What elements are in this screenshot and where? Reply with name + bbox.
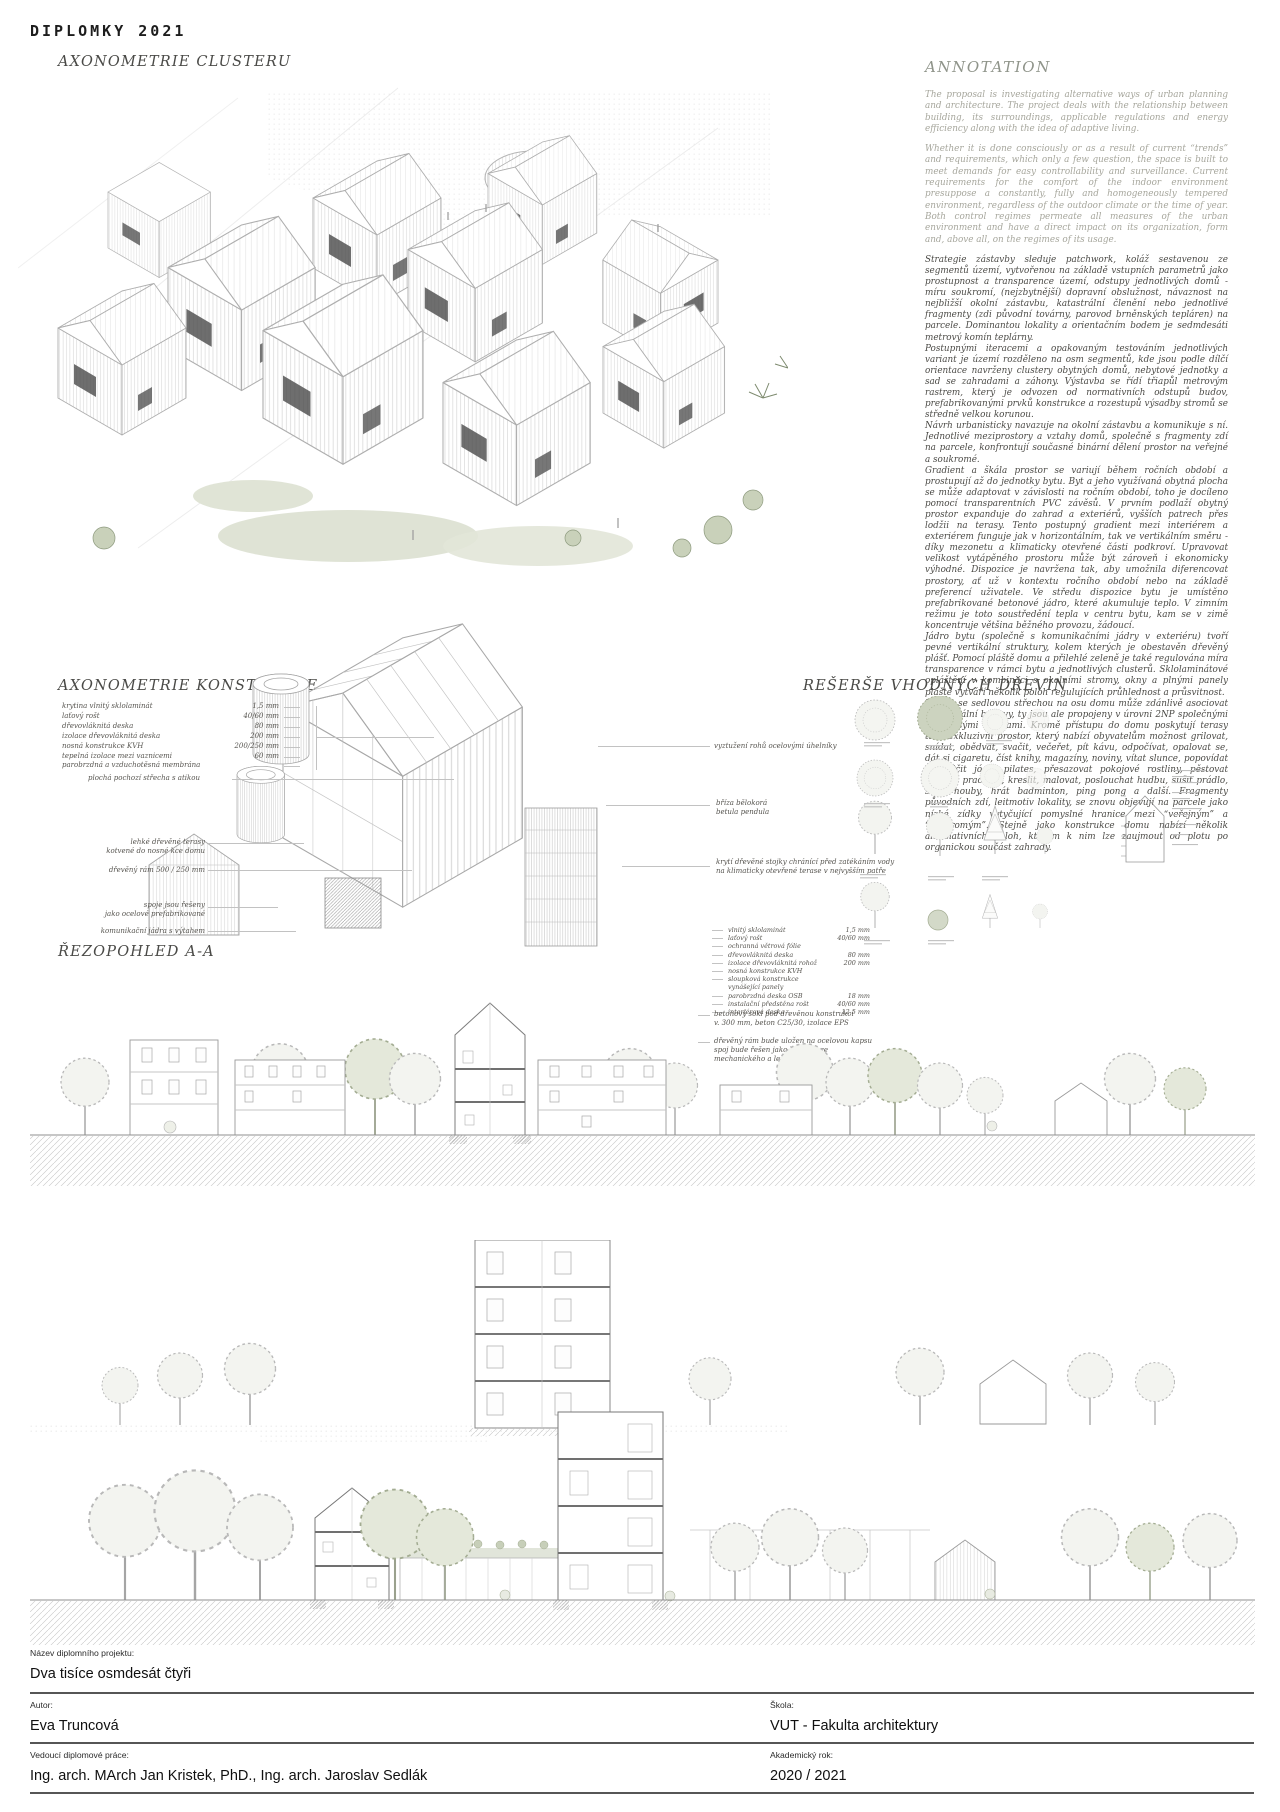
material-label: dřevovláknitá deska: [728, 951, 828, 959]
section-drawing-lower: [30, 1240, 1255, 1652]
footer-divider: [30, 1792, 1254, 1794]
project-title-value: Dva tisíce osmdesát čtyři: [30, 1666, 191, 1682]
material-label: izolace dřevovláknitá deska: [62, 732, 227, 742]
material-row: laťový rošt40/60 mm: [62, 712, 300, 722]
material-value: [227, 761, 279, 771]
section-title-tree-research: REŠERŠE VHODNÝCH DŘEVIN: [803, 678, 1068, 694]
material-value: 60 mm: [227, 752, 279, 762]
author-label: Autor:: [30, 1700, 53, 1710]
supervisor-value: Ing. arch. MArch Jan Kristek, PhD., Ing.…: [30, 1768, 427, 1784]
material-row: izolace dřevovláknitá deska200 mm: [62, 732, 300, 742]
author-value: Eva Truncová: [30, 1718, 119, 1734]
material-value: 80 mm: [227, 722, 279, 732]
material-label: tepelná izolace mezi vaznicemi: [62, 752, 227, 762]
academic-year-value: 2020 / 2021: [770, 1768, 847, 1784]
material-label: ochranná větrová fólie: [728, 942, 828, 950]
section-drawing-upper: [30, 965, 1255, 1191]
material-label: krytina vlnitý sklolaminát: [62, 702, 227, 712]
annotation-paragraph-cz: Návrh urbanisticky navazuje na okolní zá…: [925, 421, 1228, 465]
annotation-title: ANNOTATION: [925, 58, 1228, 76]
annotation-paragraph-en: Whether it is done consciously or as a r…: [925, 144, 1228, 246]
label-terraces: lehké dřevěné terasy kotvené do nosné kc…: [60, 838, 205, 856]
material-row: dřevovláknitá deska80 mm: [712, 951, 870, 959]
annotation-paragraph-cz: Gradient a škála prostor se variují běhe…: [925, 466, 1228, 632]
label-circulation-cores: komunikační jádra s výtahem: [60, 927, 205, 936]
academic-year-label: Akademický rok:: [770, 1750, 833, 1760]
material-label: parobrzdná a vzduchotěsná membrána: [62, 761, 227, 771]
material-value: 1,5 mm: [227, 702, 279, 712]
section-title-section-view: ŘEZOPOHLED A-A: [58, 944, 215, 960]
material-row: nosná konstrukce KVH200/250 mm: [62, 742, 300, 752]
material-value: 200/250 mm: [227, 742, 279, 752]
footer-divider: [30, 1692, 1254, 1694]
material-row: parobrzdná a vzduchotěsná membrána: [62, 761, 300, 771]
poster-page: DIPLOMKY 2021 AXONOMETRIE CLUSTERU: [0, 0, 1280, 1812]
school-label: Škola:: [770, 1700, 794, 1710]
material-label: laťový rošt: [728, 934, 828, 942]
annotation-paragraph-cz: Strategie zástavby sleduje patchwork, ko…: [925, 255, 1228, 344]
tree-research-drawing: [840, 696, 1270, 946]
construction-axonometry-drawing: [225, 598, 625, 953]
material-row: dřevovláknitá deska80 mm: [62, 722, 300, 732]
project-title-label: Název diplomního projektu:: [30, 1648, 134, 1658]
material-value: 80 mm: [828, 951, 870, 959]
material-row: krytina vlnitý sklolaminát1,5 mm: [62, 702, 300, 712]
label-steel-angles: vyztužení rohů ocelovými úhelníky: [714, 742, 837, 751]
material-value: 40/60 mm: [227, 712, 279, 722]
material-value: 200 mm: [227, 732, 279, 742]
material-row: tepelná izolace mezi vaznicemi60 mm: [62, 752, 300, 762]
material-label: vlnitý sklolaminát: [728, 926, 828, 934]
cluster-axonometry-drawing: [18, 68, 788, 583]
poster-header: DIPLOMKY 2021: [30, 22, 186, 40]
material-label: dřevovláknitá deska: [62, 722, 227, 732]
material-label: nosná konstrukce KVH: [62, 742, 227, 752]
footer-divider: [30, 1742, 1254, 1744]
flat-roof-label: plochá pochozí střecha s atikou: [88, 774, 200, 783]
label-birch: bříza bělokorá betula pendula: [716, 799, 769, 817]
label-timber-frame: dřevěný rám 500 / 250 mm: [60, 866, 205, 875]
supervisor-label: Vedoucí diplomové práce:: [30, 1750, 129, 1760]
annotation-english: The proposal is investigating alternativ…: [925, 90, 1228, 246]
material-label: laťový rošt: [62, 712, 227, 722]
annotation-paragraph-cz: Postupnými iteracemi a opakovaným testov…: [925, 344, 1228, 422]
annotation-paragraph-en: The proposal is investigating alternativ…: [925, 90, 1228, 135]
roof-material-list: krytina vlnitý sklolaminát1,5 mm laťový …: [62, 702, 300, 771]
school-value: VUT - Fakulta architektury: [770, 1718, 938, 1734]
label-steel-joints: spoje jsou řešeny jako ocelové prefabrik…: [60, 901, 205, 919]
